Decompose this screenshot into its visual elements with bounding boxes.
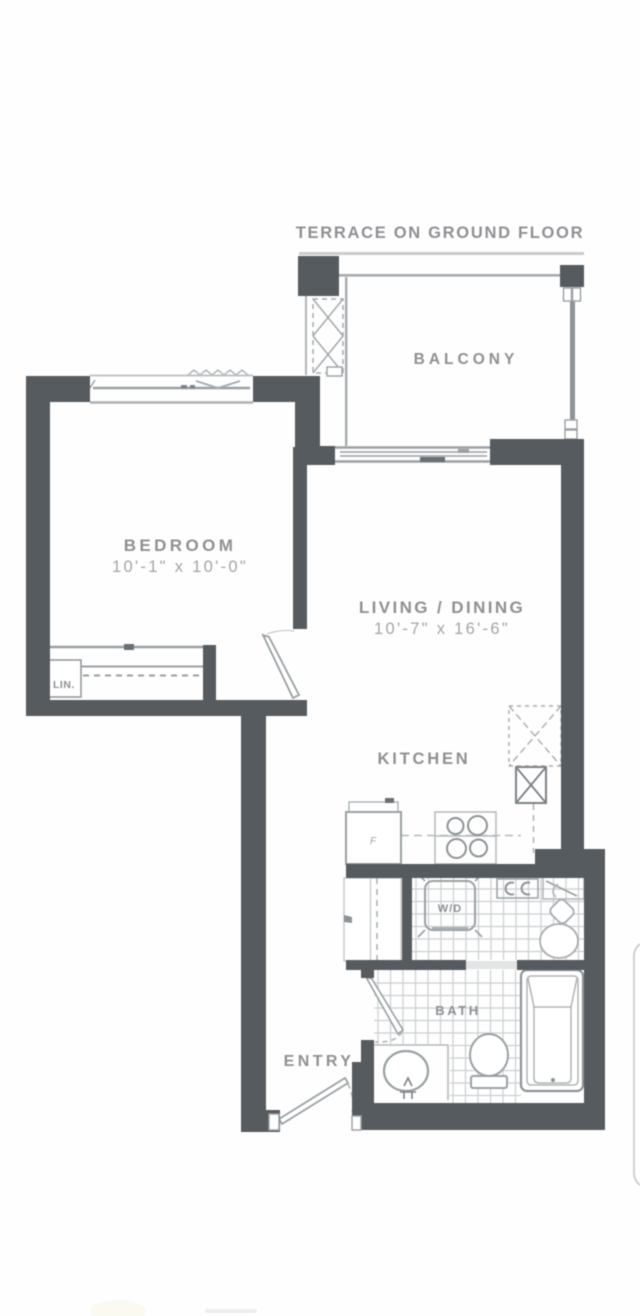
svg-text:ENTRY: ENTRY: [284, 1053, 355, 1070]
svg-text:LIVING / DINING: LIVING / DINING: [359, 598, 525, 617]
svg-text:TERRACE ON GROUND FLOOR: TERRACE ON GROUND FLOOR: [296, 224, 584, 242]
svg-text:10'-1" x 10'-0": 10'-1" x 10'-0": [112, 558, 248, 576]
svg-text:BEDROOM: BEDROOM: [124, 536, 237, 555]
svg-text:BATH: BATH: [435, 1003, 481, 1018]
svg-text:F: F: [370, 836, 377, 847]
svg-text:10'-7" x 16'-6": 10'-7" x 16'-6": [374, 620, 510, 638]
svg-text:W/D: W/D: [438, 903, 462, 915]
svg-text:KITCHEN: KITCHEN: [378, 750, 471, 768]
svg-text:LIN.: LIN.: [53, 679, 75, 691]
svg-text:BALCONY: BALCONY: [414, 351, 519, 368]
